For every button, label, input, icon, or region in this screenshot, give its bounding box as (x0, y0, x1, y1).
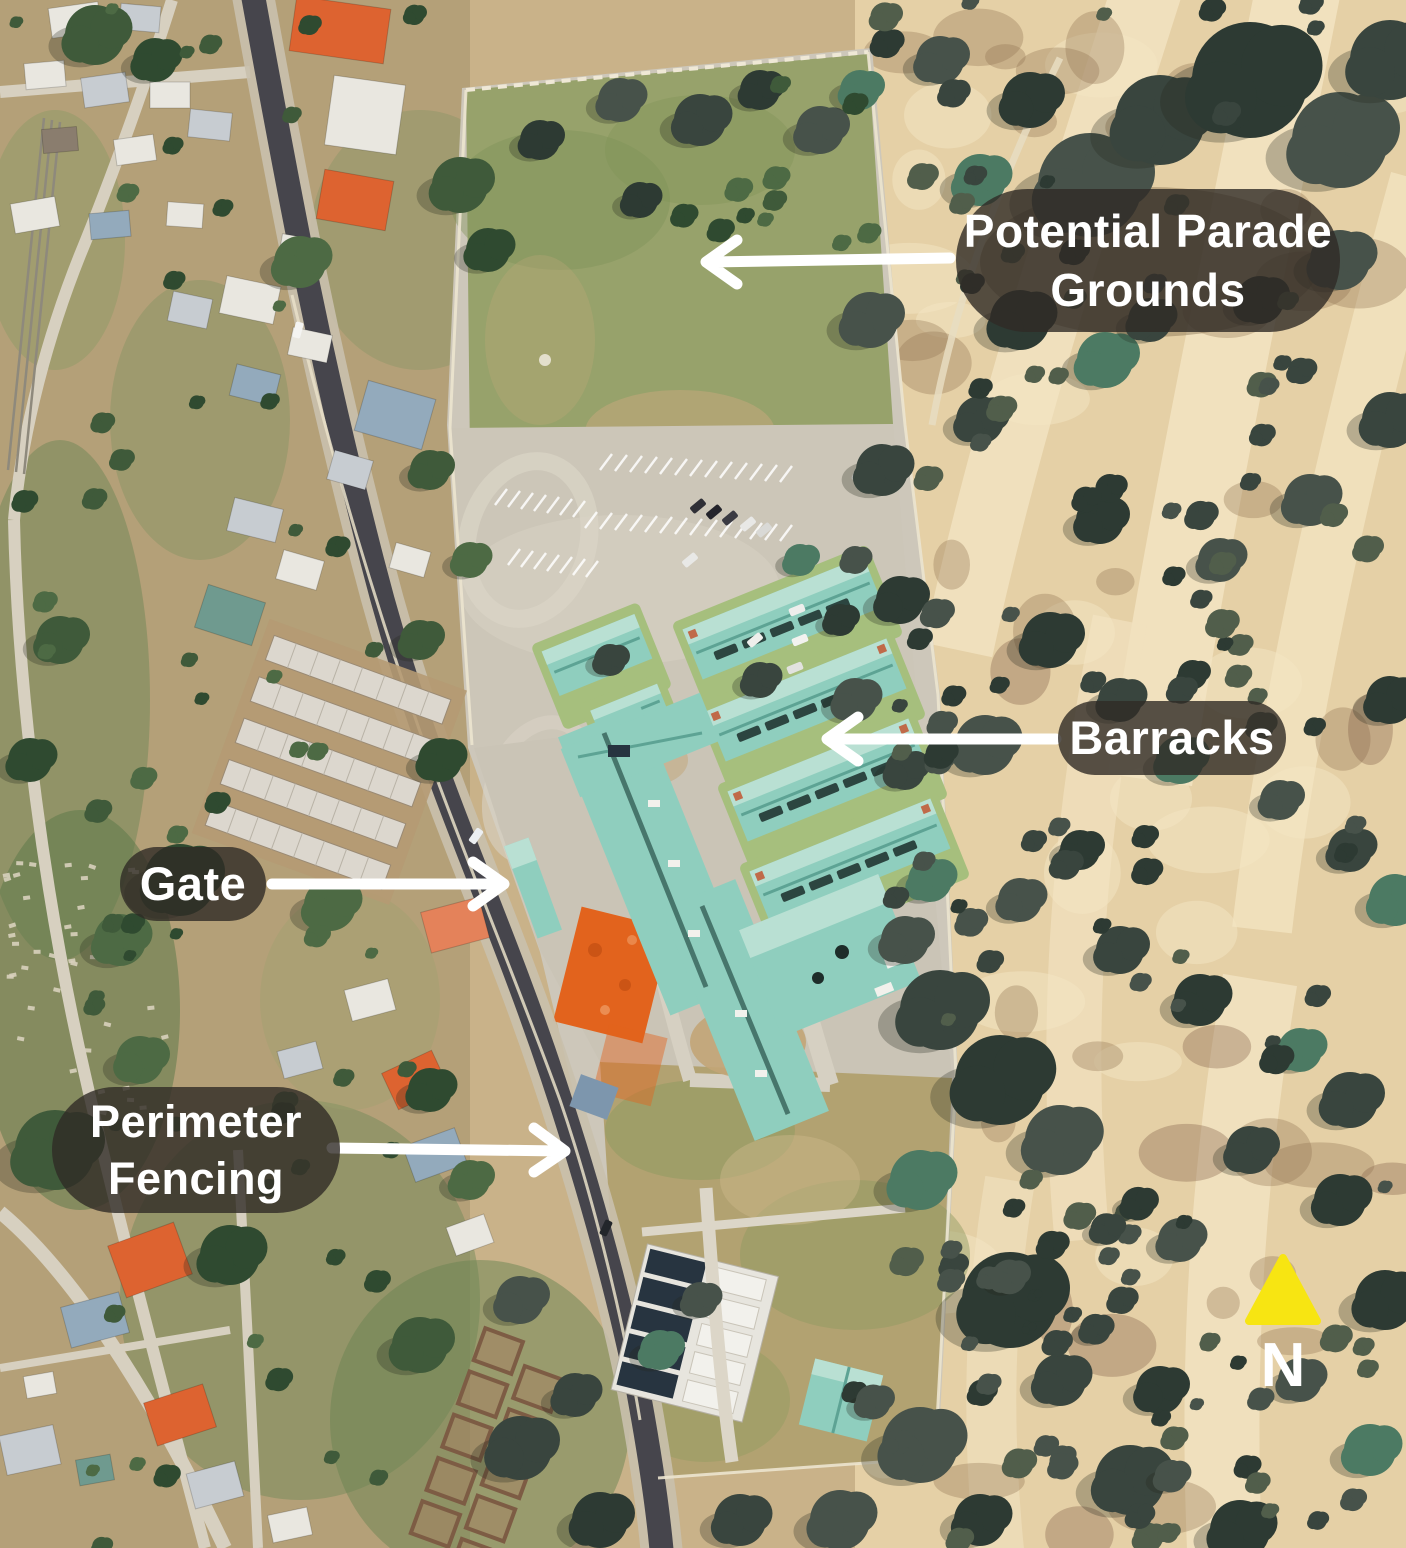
barracks-label: Barracks (1058, 701, 1286, 775)
parade-grounds-label: Potential Parade Grounds (956, 189, 1340, 332)
perimeter-fencing-label-line1: Perimeter (90, 1093, 302, 1150)
gate-label: Gate (120, 847, 266, 921)
barracks-label-text: Barracks (1069, 708, 1274, 768)
perimeter-fencing-label-line2: Fencing (108, 1150, 284, 1207)
perimeter-fencing-label: Perimeter Fencing (52, 1087, 340, 1213)
parade-grounds-label-line1: Potential Parade (964, 202, 1332, 261)
annotated-satellite-image: Potential Parade Grounds Barracks Gate P… (0, 0, 1406, 1548)
gate-label-text: Gate (140, 854, 247, 914)
parade-grounds-label-line2: Grounds (1050, 261, 1245, 320)
north-label: N (1230, 1330, 1336, 1401)
